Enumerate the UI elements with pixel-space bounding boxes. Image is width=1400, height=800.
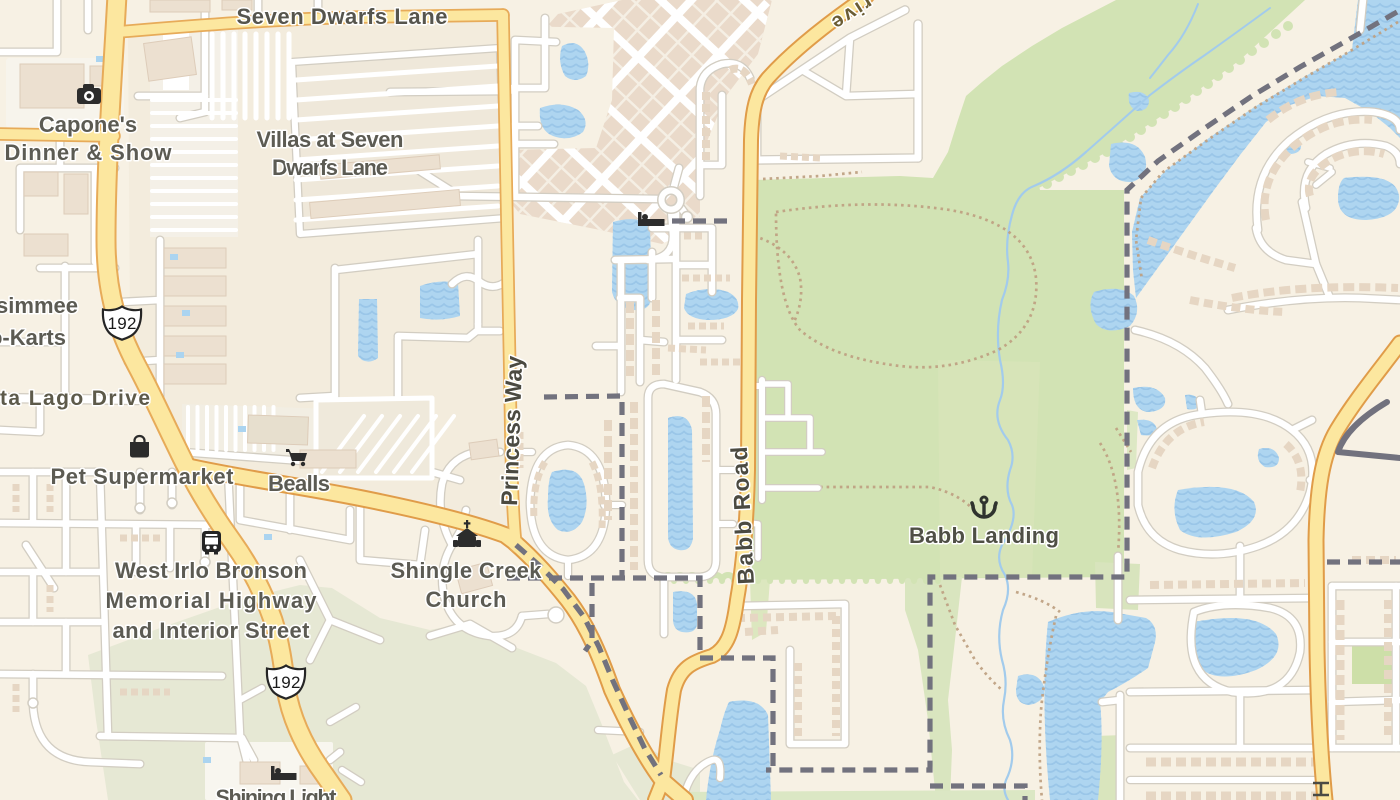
svg-text:Bealls: Bealls bbox=[268, 471, 330, 496]
svg-text:simmee: simmee bbox=[0, 293, 78, 318]
svg-text:Shining Light: Shining Light bbox=[216, 785, 338, 800]
svg-text:West Irlo Bronson: West Irlo Bronson bbox=[115, 558, 307, 583]
svg-text:Memorial Highway: Memorial Highway bbox=[106, 588, 318, 613]
svg-text:192: 192 bbox=[272, 673, 301, 692]
svg-text:Capone's: Capone's bbox=[39, 112, 137, 137]
svg-text:Villas at Seven: Villas at Seven bbox=[257, 127, 404, 152]
svg-text:Pet Supermarket: Pet Supermarket bbox=[51, 464, 235, 489]
svg-text:192: 192 bbox=[108, 314, 137, 333]
svg-text:Dwarfs Lane: Dwarfs Lane bbox=[272, 155, 388, 180]
svg-text:Babb Landing: Babb Landing bbox=[909, 523, 1059, 548]
svg-text:and Interior Street: and Interior Street bbox=[113, 618, 311, 643]
svg-text:Dinner & Show: Dinner & Show bbox=[5, 140, 173, 165]
svg-text:o-Karts: o-Karts bbox=[0, 325, 66, 350]
svg-text:Seven Dwarfs Lane: Seven Dwarfs Lane bbox=[237, 4, 448, 29]
svg-text:ta Lago Drive: ta Lago Drive bbox=[0, 387, 150, 410]
svg-text:Shingle Creek: Shingle Creek bbox=[391, 558, 543, 583]
svg-text:Church: Church bbox=[426, 587, 507, 612]
svg-text:Princess Way: Princess Way bbox=[496, 355, 527, 506]
